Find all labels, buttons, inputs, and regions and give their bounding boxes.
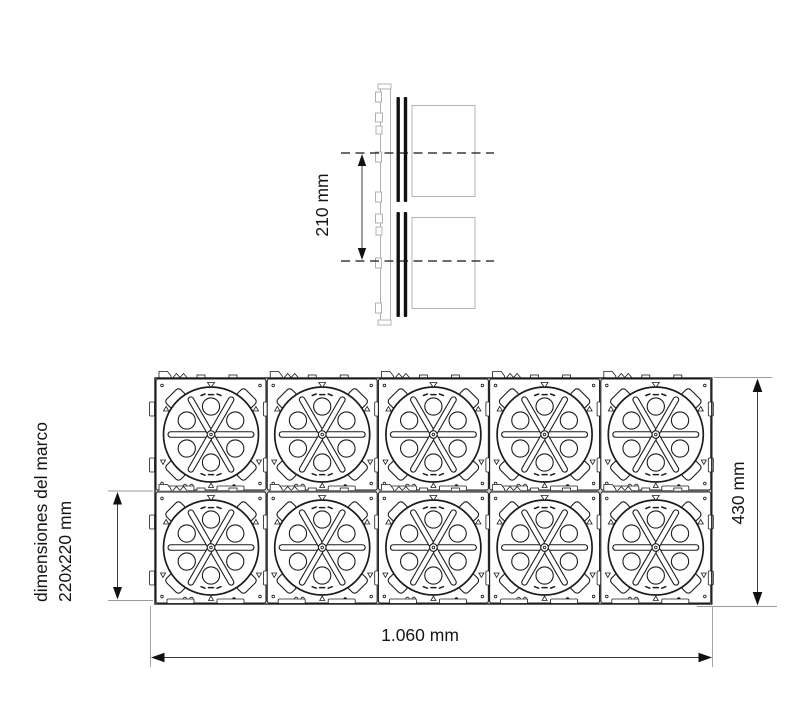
- grid-module: [490, 372, 602, 491]
- grid-module: [156, 372, 269, 491]
- dimension-arrow-right: [699, 653, 713, 663]
- dimension-arrow-left: [151, 653, 165, 663]
- spacing-dimension-label: 210 mm: [312, 173, 332, 236]
- grid-module: [490, 485, 602, 604]
- frame-dimension-label-2: 220x220 mm: [55, 501, 75, 602]
- width-dimension: 1.060 mm: [151, 606, 713, 667]
- dimension-arrow-up: [753, 379, 763, 393]
- spacing-dimension: 210 mm: [312, 154, 366, 260]
- mounting-rail-profile: [376, 84, 392, 325]
- grid-module: [378, 485, 491, 604]
- side-view-unit-top: [397, 97, 476, 202]
- side-view: 210 mm: [312, 84, 494, 325]
- dimension-arrow-up: [358, 154, 366, 166]
- outer-left-tabs: [150, 402, 155, 585]
- dimension-arrow-up: [113, 492, 122, 505]
- width-dimension-label: 1.060 mm: [381, 625, 459, 645]
- grid-module: [267, 485, 380, 604]
- drawing-canvas: 210 mm 1.060 mm: [0, 0, 800, 716]
- led-bar: [397, 97, 400, 202]
- dimension-arrow-down: [113, 587, 122, 600]
- dimension-arrow-down: [358, 248, 366, 260]
- led-bar: [397, 212, 400, 317]
- led-bar: [404, 97, 407, 202]
- technical-drawing: 210 mm 1.060 mm: [0, 0, 800, 716]
- dimension-arrow-down: [753, 592, 763, 606]
- grid-module: [156, 485, 269, 604]
- side-view-unit-bottom: [397, 212, 476, 317]
- module-grid: [150, 372, 714, 605]
- frame-dimension: dimensiones del marco 220x220 mm: [31, 422, 153, 602]
- frame-dimension-label-1: dimensiones del marco: [31, 422, 51, 602]
- led-bar: [404, 212, 407, 317]
- luminaire-body: [412, 106, 475, 197]
- grid-module: [601, 485, 714, 604]
- grid-module: [601, 372, 714, 491]
- grid-module: [378, 372, 491, 491]
- height-dimension-label: 430 mm: [728, 461, 748, 524]
- luminaire-body: [412, 218, 475, 309]
- grid-module: [267, 372, 380, 491]
